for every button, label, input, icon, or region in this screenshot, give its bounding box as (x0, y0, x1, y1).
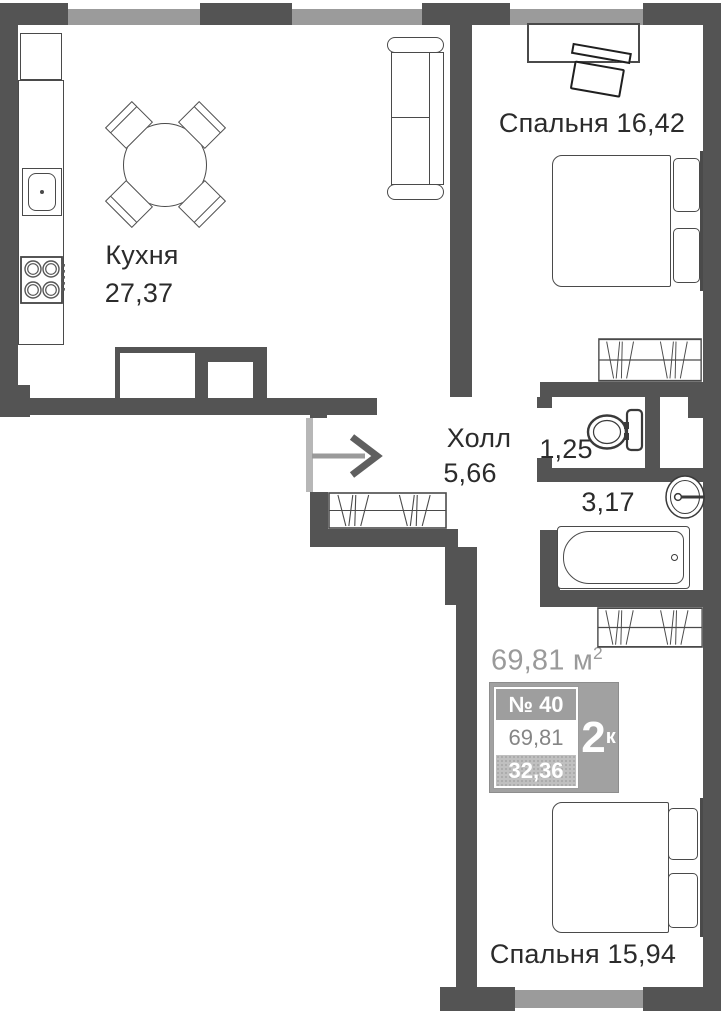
apartment-badge: № 40 69,81 32,36 2к (489, 682, 619, 793)
bed-headboard (700, 798, 703, 937)
sofa-seat-divider (392, 117, 429, 118)
wall (645, 397, 660, 468)
window (292, 9, 422, 25)
bed-pillow (668, 808, 698, 860)
badge-left-panel: № 40 69,81 32,36 (493, 686, 579, 789)
bathtub-inner (563, 531, 684, 584)
room-label-hall: Холл (447, 423, 511, 454)
bed-pillow (673, 158, 700, 212)
sofa-armrest (387, 37, 444, 53)
floor-plan: Кухня 27,37 Спальня 16,42 Холл 5,66 1,25 (0, 0, 721, 1011)
stove-icon (20, 256, 65, 304)
room-label-bedroom2: Спальня 15,94 (490, 939, 676, 970)
apartment-rooms-count: 2к (579, 683, 618, 792)
window (68, 9, 200, 25)
bed-mattress (552, 155, 671, 287)
wall-opening (120, 353, 195, 398)
wall (450, 3, 472, 397)
wall (688, 397, 703, 418)
bathtub-drain-dot (671, 554, 678, 561)
wall (200, 3, 292, 25)
wall (310, 398, 327, 418)
wardrobe-symbol (598, 338, 702, 382)
desk-chair-symbol (564, 43, 636, 103)
bed-pillow (668, 873, 698, 928)
sofa-armrest (387, 184, 444, 200)
room-area-wc: 1,25 (539, 434, 592, 465)
sofa-body (391, 52, 444, 185)
fridge-symbol (20, 33, 62, 80)
room-area-kitchen: 27,37 (105, 278, 174, 309)
total-area-label: 69,81 м2 (491, 643, 603, 678)
wall (540, 382, 721, 397)
window (515, 990, 643, 1008)
wardrobe-symbol (328, 492, 447, 529)
bed-mattress (552, 802, 669, 933)
bed-headboard (700, 151, 703, 291)
sink-drain-dot (40, 190, 44, 194)
wall (456, 575, 477, 1011)
wall (540, 590, 712, 607)
wall (0, 3, 18, 417)
washbasin-icon (664, 474, 708, 520)
room-label-kitchen: Кухня (105, 240, 178, 271)
sofa-backrest-line (429, 53, 430, 184)
wall (440, 987, 515, 1011)
room-area-bathroom: 3,17 (581, 487, 634, 518)
wall (310, 529, 458, 547)
apartment-total-area: 69,81 (494, 722, 578, 753)
bed-pillow (673, 228, 700, 283)
entrance-arrow-icon (305, 430, 385, 482)
room-area-hall: 5,66 (443, 458, 496, 489)
wall (643, 987, 721, 1011)
apartment-living-area: 32,36 (496, 755, 576, 786)
toilet-icon (586, 406, 646, 454)
wardrobe-symbol (597, 607, 703, 648)
apartment-number: № 40 (496, 689, 576, 720)
wall (537, 397, 552, 408)
room-label-bedroom1: Спальня 16,42 (499, 108, 685, 139)
wall-opening (208, 362, 253, 398)
